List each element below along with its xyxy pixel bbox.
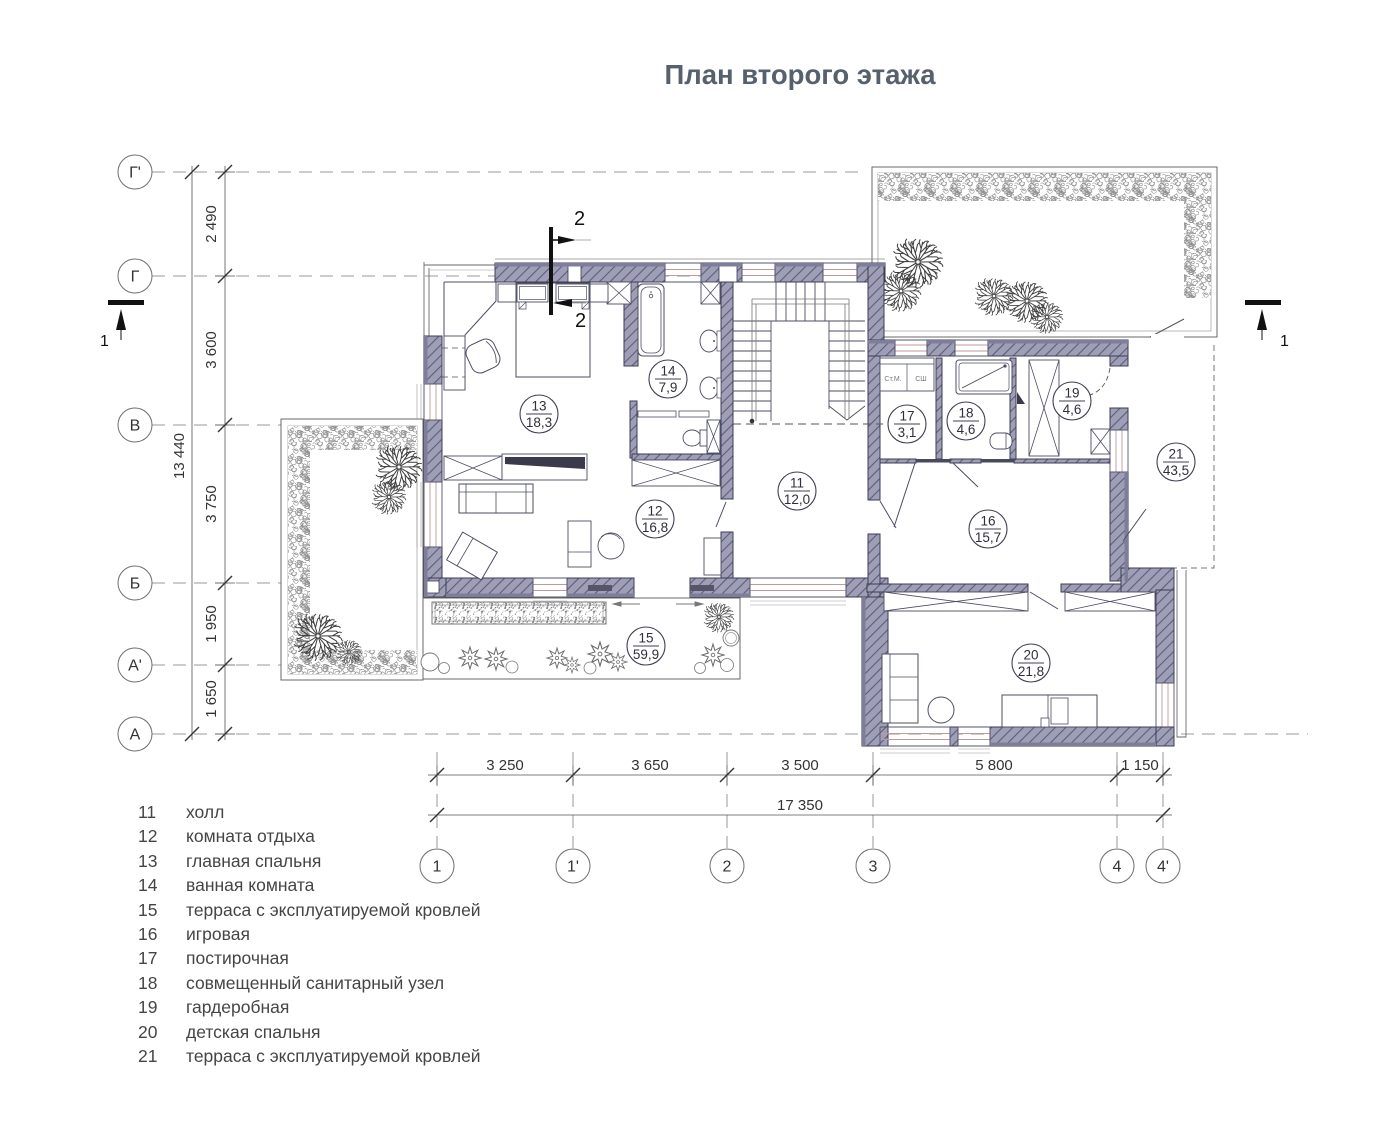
svg-text:3: 3 [869, 859, 878, 876]
svg-text:совмещенный санитарный узел: совмещенный санитарный узел [186, 973, 444, 993]
svg-text:План второго этажа: План второго этажа [664, 59, 936, 90]
svg-text:18: 18 [138, 973, 157, 993]
svg-text:терраса с эксплуатируемой кров: терраса с эксплуатируемой кровлей [186, 900, 481, 920]
svg-text:1: 1 [100, 333, 109, 350]
svg-text:20: 20 [138, 1022, 158, 1042]
svg-text:гардеробная: гардеробная [186, 997, 289, 1017]
svg-text:детская спальня: детская спальня [186, 1022, 320, 1042]
svg-text:12: 12 [138, 826, 157, 846]
svg-text:16: 16 [138, 924, 157, 944]
svg-text:игровая: игровая [186, 924, 250, 944]
svg-text:12: 12 [647, 504, 662, 519]
svg-text:17: 17 [899, 409, 914, 424]
svg-text:13: 13 [531, 399, 546, 414]
svg-text:4,6: 4,6 [1063, 402, 1082, 417]
svg-text:18,3: 18,3 [526, 415, 552, 430]
svg-text:А': А' [128, 658, 142, 675]
svg-text:59,9: 59,9 [633, 647, 659, 662]
svg-text:3 600: 3 600 [203, 331, 220, 369]
svg-text:1': 1' [567, 859, 579, 876]
svg-text:1: 1 [1280, 333, 1289, 350]
svg-text:21: 21 [138, 1046, 157, 1066]
svg-text:постирочная: постирочная [186, 948, 289, 968]
svg-text:СШ: СШ [915, 376, 926, 383]
svg-text:3 250: 3 250 [486, 757, 524, 774]
svg-text:3 500: 3 500 [781, 757, 819, 774]
svg-text:15: 15 [638, 631, 653, 646]
svg-text:главная спальня: главная спальня [186, 851, 321, 871]
svg-text:17 350: 17 350 [777, 797, 823, 814]
svg-text:5 800: 5 800 [975, 757, 1013, 774]
svg-text:2: 2 [723, 859, 732, 876]
svg-text:11: 11 [790, 476, 804, 491]
svg-text:19: 19 [1064, 386, 1079, 401]
svg-text:3,1: 3,1 [898, 425, 917, 440]
svg-text:Б: Б [130, 576, 141, 593]
svg-text:1: 1 [433, 859, 442, 876]
svg-text:16: 16 [980, 514, 995, 529]
svg-text:4': 4' [1157, 859, 1169, 876]
svg-text:17: 17 [138, 948, 157, 968]
svg-text:Г: Г [131, 269, 140, 286]
svg-text:А: А [130, 727, 141, 744]
svg-text:13: 13 [138, 851, 157, 871]
svg-text:3 750: 3 750 [203, 485, 220, 523]
svg-text:ванная комната: ванная комната [186, 875, 315, 895]
svg-text:комната отдыха: комната отдыха [186, 826, 315, 846]
svg-text:холл: холл [186, 802, 224, 822]
svg-text:В: В [130, 418, 141, 435]
svg-text:4,6: 4,6 [957, 422, 976, 437]
svg-text:3 650: 3 650 [631, 757, 669, 774]
svg-text:2: 2 [574, 208, 585, 230]
svg-text:19: 19 [138, 997, 157, 1017]
svg-text:15,7: 15,7 [975, 530, 1001, 545]
svg-text:2: 2 [575, 310, 586, 332]
svg-text:1 150: 1 150 [1121, 757, 1159, 774]
svg-text:1 950: 1 950 [203, 605, 220, 643]
svg-text:21: 21 [1168, 447, 1183, 462]
svg-text:2 490: 2 490 [203, 205, 220, 243]
svg-text:18: 18 [958, 406, 973, 421]
svg-text:15: 15 [138, 900, 157, 920]
svg-text:4: 4 [1113, 859, 1122, 876]
svg-text:16,8: 16,8 [642, 520, 668, 535]
svg-text:20: 20 [1023, 648, 1038, 663]
svg-text:1 650: 1 650 [203, 680, 220, 718]
svg-text:43,5: 43,5 [1163, 463, 1189, 478]
svg-text:12,0: 12,0 [784, 492, 810, 507]
svg-text:Ст.М.: Ст.М. [884, 376, 901, 383]
svg-text:14: 14 [138, 875, 158, 895]
svg-text:14: 14 [660, 364, 676, 379]
svg-text:Г': Г' [129, 165, 141, 182]
svg-text:7,9: 7,9 [659, 380, 678, 395]
svg-text:11: 11 [138, 802, 156, 822]
svg-text:21,8: 21,8 [1018, 664, 1044, 679]
svg-text:13 440: 13 440 [171, 433, 188, 479]
svg-text:терраса с эксплуатируемой кров: терраса с эксплуатируемой кровлей [186, 1046, 481, 1066]
